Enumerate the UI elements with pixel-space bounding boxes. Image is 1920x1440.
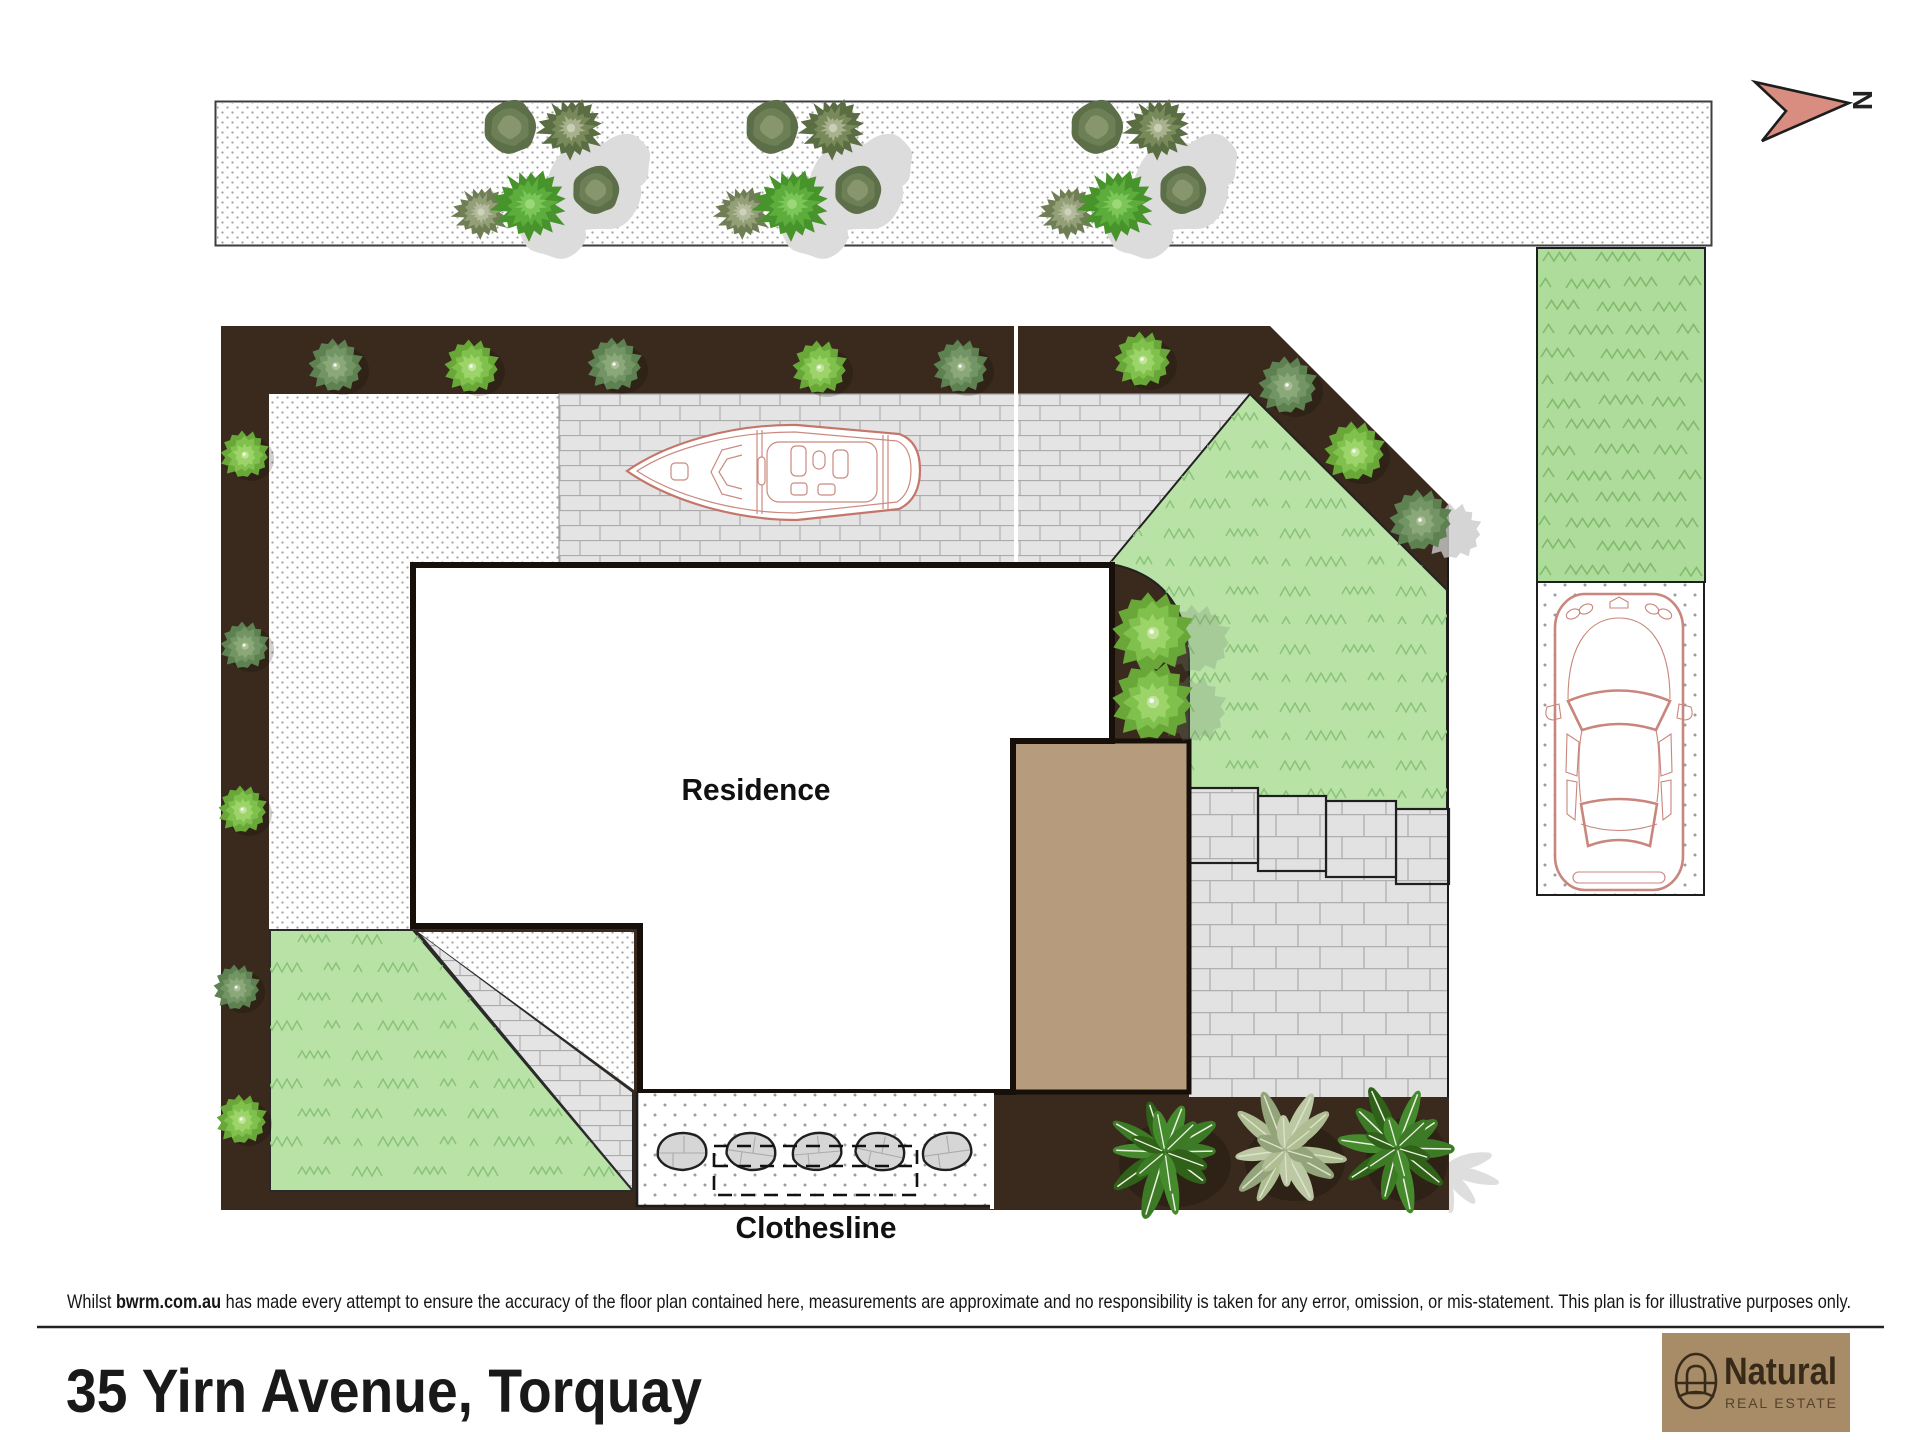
svg-text:Whilst bwrm.com.au has made ev: Whilst bwrm.com.au has made every attemp… (67, 1291, 1851, 1313)
svg-text:35 Yirn Avenue, Torquay: 35 Yirn Avenue, Torquay (66, 1357, 702, 1425)
svg-text:Clothesline: Clothesline (736, 1210, 897, 1245)
svg-text:Natural: Natural (1724, 1351, 1837, 1393)
svg-text:N: N (1847, 90, 1878, 110)
svg-text:REAL ESTATE: REAL ESTATE (1725, 1395, 1836, 1411)
svg-text:Residence: Residence (682, 772, 831, 807)
